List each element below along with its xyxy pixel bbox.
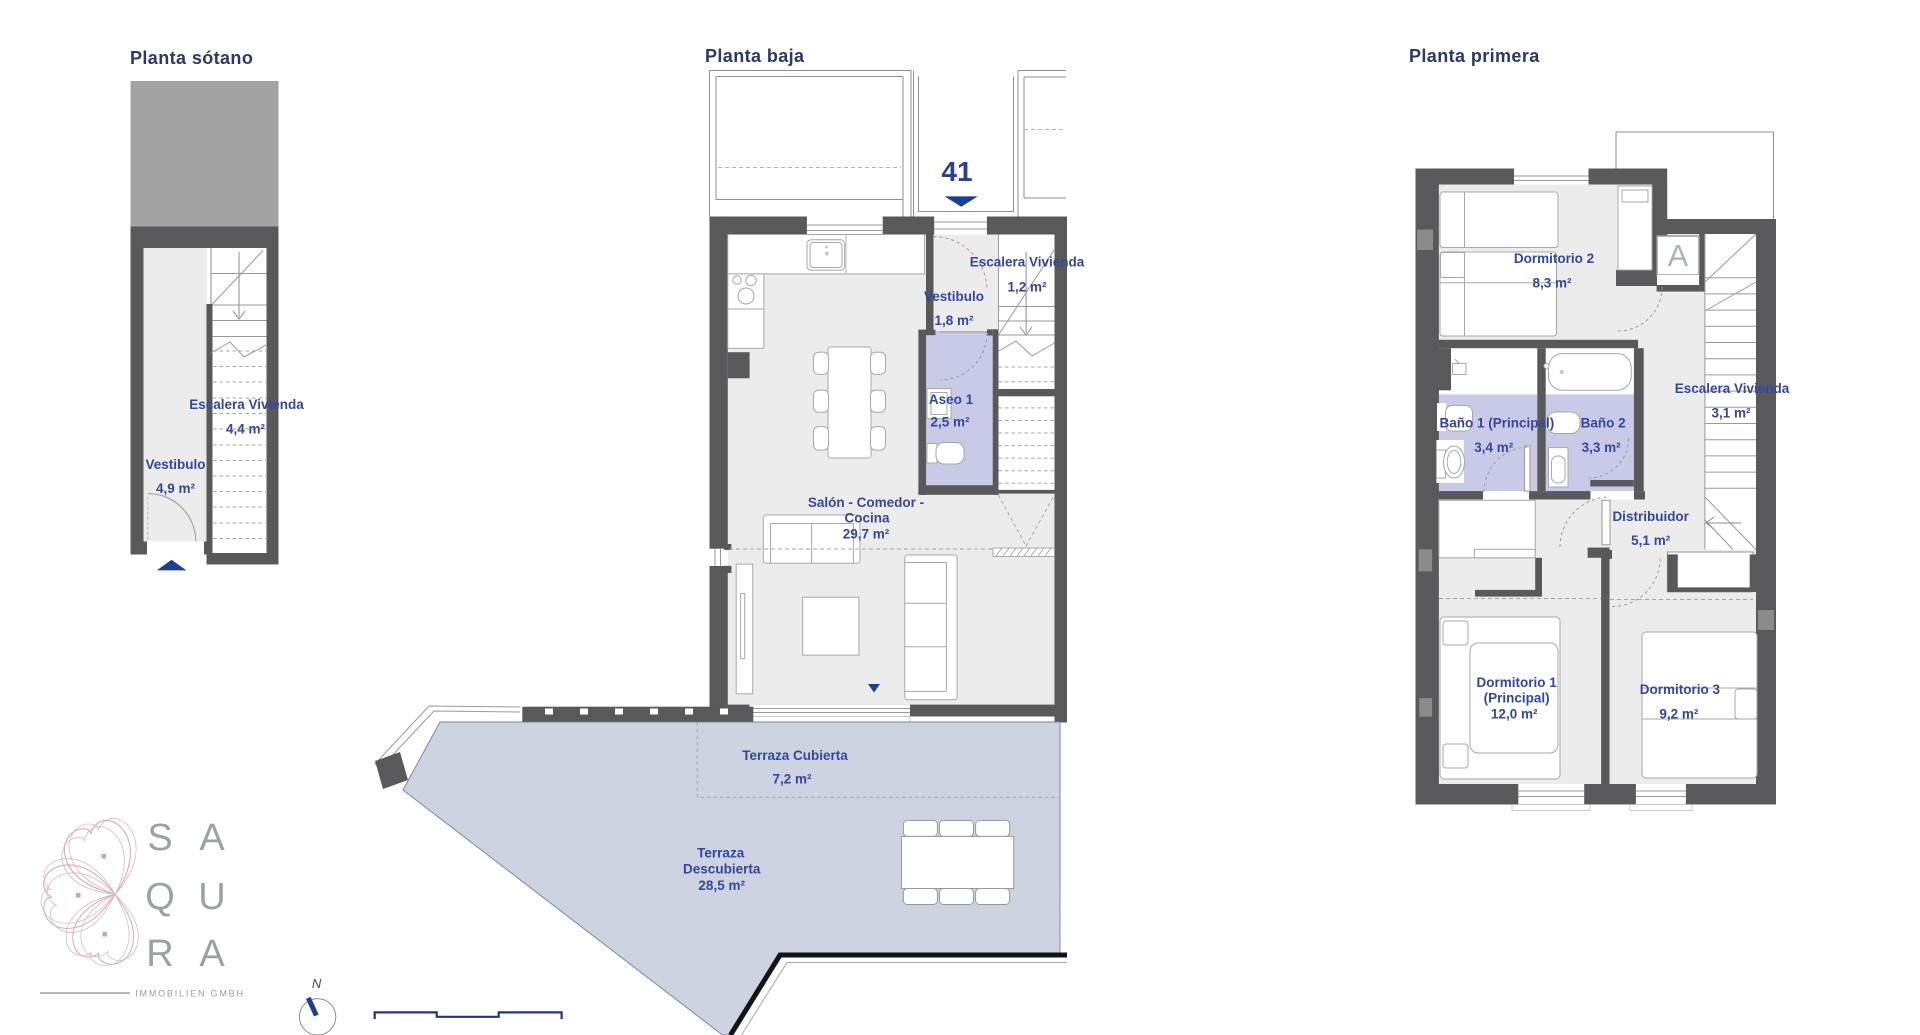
svg-text:Escalera Vivienda: Escalera Vivienda <box>970 255 1085 270</box>
svg-text:Distribuidor: Distribuidor <box>1612 509 1689 524</box>
svg-text:3,1 m²: 3,1 m² <box>1711 406 1751 421</box>
svg-text:Planta sótano: Planta sótano <box>130 48 253 68</box>
svg-text:Cocina: Cocina <box>844 511 890 526</box>
svg-text:Terraza Cubierta: Terraza Cubierta <box>742 748 848 763</box>
svg-text:Baño 2: Baño 2 <box>1581 416 1626 431</box>
svg-text:5,1 m²: 5,1 m² <box>1631 533 1671 548</box>
svg-text:4,9 m²: 4,9 m² <box>156 481 196 496</box>
svg-text:Vestibulo: Vestibulo <box>924 289 984 304</box>
svg-text:Q: Q <box>145 876 175 918</box>
svg-text:Vestibulo: Vestibulo <box>145 457 205 472</box>
svg-text:28,5 m²: 28,5 m² <box>698 878 745 893</box>
svg-text:9,2 m²: 9,2 m² <box>1659 707 1699 722</box>
svg-text:7,2 m²: 7,2 m² <box>772 772 812 787</box>
svg-text:Planta primera: Planta primera <box>1409 46 1540 66</box>
svg-text:Aseo 1: Aseo 1 <box>929 392 974 407</box>
svg-text:Baño 1 (Principal): Baño 1 (Principal) <box>1440 416 1555 431</box>
svg-text:29,7 m²: 29,7 m² <box>843 527 890 542</box>
svg-text:Planta baja: Planta baja <box>705 46 805 66</box>
svg-text:Escalera Vivienda: Escalera Vivienda <box>189 397 304 412</box>
svg-text:R: R <box>146 933 173 975</box>
svg-text:Dormitorio 2: Dormitorio 2 <box>1514 251 1594 266</box>
svg-text:IMMOBILIEN GMBH: IMMOBILIEN GMBH <box>135 989 245 999</box>
svg-text:8,3 m²: 8,3 m² <box>1532 276 1572 291</box>
svg-text:Escalera Vivienda: Escalera Vivienda <box>1675 381 1790 396</box>
svg-text:3,4 m²: 3,4 m² <box>1474 440 1514 455</box>
svg-text:41: 41 <box>941 156 972 187</box>
svg-text:4,4 m²: 4,4 m² <box>226 422 266 437</box>
svg-text:Descubierta: Descubierta <box>683 862 761 877</box>
svg-text:A: A <box>1668 238 1689 273</box>
svg-text:12,0 m²: 12,0 m² <box>1491 707 1538 722</box>
svg-text:A: A <box>199 817 225 859</box>
svg-text:S: S <box>147 817 172 859</box>
svg-text:Dormitorio 1: Dormitorio 1 <box>1476 675 1557 690</box>
svg-text:(Principal): (Principal) <box>1484 691 1550 706</box>
svg-text:U: U <box>198 876 225 918</box>
svg-text:Salón - Comedor -: Salón - Comedor - <box>808 495 924 510</box>
svg-text:A: A <box>199 933 225 975</box>
svg-text:N: N <box>312 976 322 991</box>
svg-text:1,8 m²: 1,8 m² <box>934 313 974 328</box>
svg-text:1,2 m²: 1,2 m² <box>1007 280 1047 295</box>
svg-text:3,3 m²: 3,3 m² <box>1582 440 1622 455</box>
svg-text:Terraza: Terraza <box>697 846 745 861</box>
svg-text:Dormitorio 3: Dormitorio 3 <box>1640 682 1721 697</box>
svg-text:2,5 m²: 2,5 m² <box>930 415 970 430</box>
